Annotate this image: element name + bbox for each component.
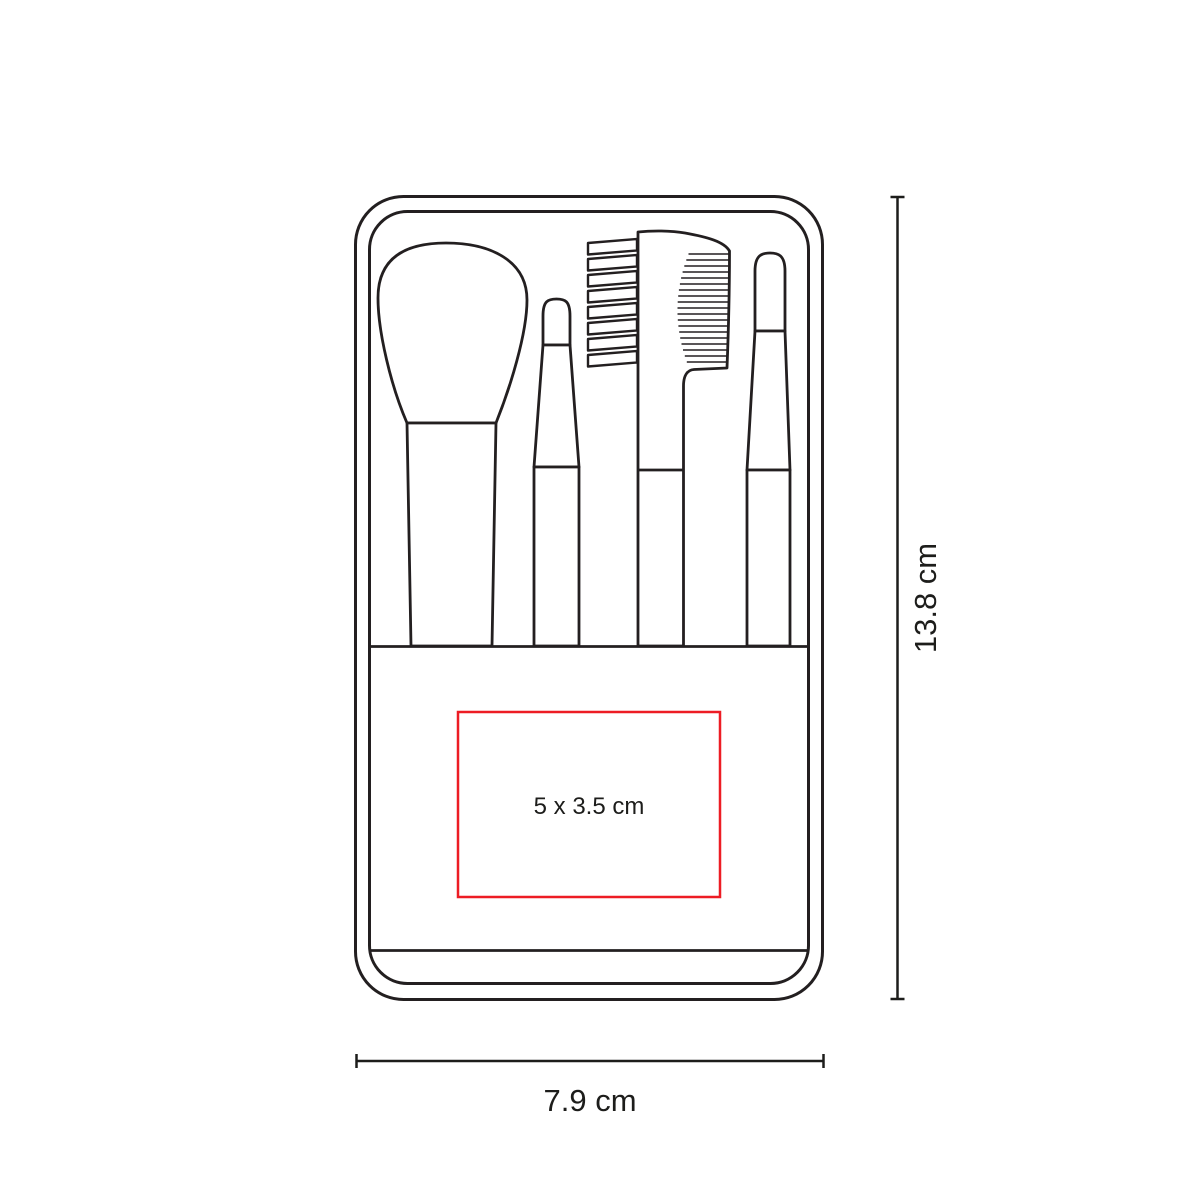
- width-dimension-label: 7.9 cm: [543, 1083, 636, 1118]
- applicator-handle: [534, 467, 579, 646]
- print-area: 5 x 3.5 cm: [458, 712, 720, 897]
- height-dimension: 13.8 cm: [891, 197, 944, 999]
- product-dimension-diagram: 5 x 3.5 cm 13.8 cm 7.9 cm: [0, 0, 1200, 1200]
- powder-brush-handle: [407, 423, 496, 646]
- eyeliner-tip: [755, 253, 785, 331]
- eyeshadow-applicator: [534, 299, 579, 646]
- width-dimension: 7.9 cm: [356, 1054, 824, 1118]
- diagram-canvas: 5 x 3.5 cm 13.8 cm 7.9 cm: [0, 0, 1200, 1200]
- eyeliner-brush: [747, 253, 790, 646]
- powder-brush: [378, 243, 527, 646]
- eyeliner-handle: [747, 470, 790, 646]
- applicator-tip: [543, 299, 570, 345]
- height-dimension-label: 13.8 cm: [908, 543, 943, 653]
- print-area-label: 5 x 3.5 cm: [534, 793, 645, 820]
- comb-body: [638, 231, 730, 646]
- brow-brush-comb: [588, 231, 730, 646]
- applicator-ferrule: [534, 345, 579, 467]
- eyeliner-ferrule: [747, 331, 790, 470]
- powder-brush-head: [378, 243, 527, 423]
- brow-brush-bristles: [588, 239, 637, 367]
